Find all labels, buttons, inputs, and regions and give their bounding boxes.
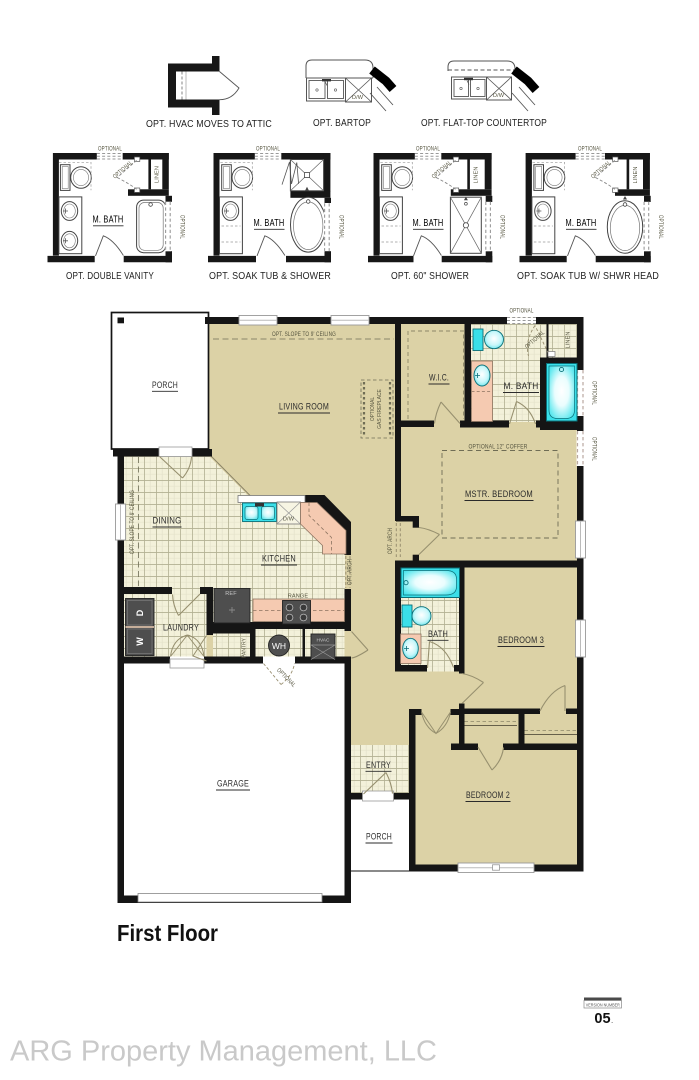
svg-text:OPT. SLOPE TO 9' CEILING: OPT. SLOPE TO 9' CEILING xyxy=(272,331,336,338)
svg-text:M. BATH: M. BATH xyxy=(566,217,597,229)
svg-text:ENTRY: ENTRY xyxy=(366,760,391,771)
svg-text:M. BATH: M. BATH xyxy=(254,217,285,229)
svg-text:BATH: BATH xyxy=(428,629,448,640)
svg-text:OPTIONAL 12" COFFER: OPTIONAL 12" COFFER xyxy=(469,444,528,451)
svg-text:ARG Property Management, LLC: ARG Property Management, LLC xyxy=(10,1036,437,1068)
svg-text:05: 05 xyxy=(594,1011,610,1027)
svg-text:OPT. 60" SHOWER: OPT. 60" SHOWER xyxy=(391,270,469,282)
svg-text:OPT. FLAT-TOP COUNTERTOP: OPT. FLAT-TOP COUNTERTOP xyxy=(421,117,547,129)
svg-text:LIVING ROOM: LIVING ROOM xyxy=(279,402,329,413)
svg-text:GARAGE: GARAGE xyxy=(217,779,249,790)
svg-text:OPTIONAL: OPTIONAL xyxy=(591,381,598,405)
svg-text:VERSION NUMBER: VERSION NUMBER xyxy=(586,1002,621,1007)
svg-text:W.I.C.: W.I.C. xyxy=(429,373,449,384)
svg-text:OPTIONAL: OPTIONAL xyxy=(431,159,454,180)
svg-text:OPT. SOAK TUB & SHOWER: OPT. SOAK TUB & SHOWER xyxy=(209,270,331,282)
svg-text:RANGE: RANGE xyxy=(288,594,309,600)
svg-text:LINEN: LINEN xyxy=(633,167,639,184)
svg-text:M. BATH: M. BATH xyxy=(93,214,124,226)
svg-text:LINEN: LINEN xyxy=(566,332,572,349)
svg-text:OPTIONAL: OPTIONAL xyxy=(112,159,135,180)
svg-text:LINEN: LINEN xyxy=(474,167,480,184)
svg-text:OPTIONAL: OPTIONAL xyxy=(657,215,664,239)
svg-text:OPTIONAL: OPTIONAL xyxy=(98,146,122,153)
svg-text:OPTIONAL: OPTIONAL xyxy=(591,437,598,461)
svg-text:OPT. HVAC MOVES TO ATTIC: OPT. HVAC MOVES TO ATTIC xyxy=(146,118,272,130)
svg-text:D/W: D/W xyxy=(352,95,364,101)
svg-text:PORCH: PORCH xyxy=(366,832,392,843)
svg-text:D/W: D/W xyxy=(493,93,505,99)
svg-text:D/W: D/W xyxy=(283,517,295,523)
svg-text:PANTRY: PANTRY xyxy=(242,638,248,658)
svg-text:KITCHEN: KITCHEN xyxy=(262,554,296,565)
svg-text:OPTIONAL: OPTIONAL xyxy=(416,146,440,153)
svg-text:M. BATH: M. BATH xyxy=(504,381,539,392)
svg-text:REF: REF xyxy=(225,591,237,597)
svg-text:OPTIONAL: OPTIONAL xyxy=(590,159,613,180)
svg-text:LAUNDRY: LAUNDRY xyxy=(163,623,199,634)
svg-text:MSTR. BEDROOM: MSTR. BEDROOM xyxy=(465,489,533,500)
svg-text:PORCH: PORCH xyxy=(152,380,178,391)
svg-text:GAS FIREPLACE: GAS FIREPLACE xyxy=(377,388,383,428)
svg-text:.: . xyxy=(611,1016,613,1025)
svg-text:WH: WH xyxy=(272,641,286,651)
svg-text:BEDROOM 3: BEDROOM 3 xyxy=(498,635,544,646)
svg-text:HVAC: HVAC xyxy=(317,638,331,644)
svg-text:OPT. DOUBLE VANITY: OPT. DOUBLE VANITY xyxy=(66,270,154,282)
svg-text:OPTIONAL: OPTIONAL xyxy=(510,308,534,315)
svg-text:BEDROOM 2: BEDROOM 2 xyxy=(466,790,510,801)
svg-text:OPT. ARCH: OPT. ARCH xyxy=(347,559,354,585)
svg-text:OPT. ARCH: OPT. ARCH xyxy=(387,528,394,554)
svg-text:LINEN: LINEN xyxy=(155,166,161,183)
svg-text:OPTIONAL: OPTIONAL xyxy=(578,146,602,153)
svg-text:OPTIONAL: OPTIONAL xyxy=(370,397,376,421)
svg-text:OPT. SLOPE TO 9' CEILING: OPT. SLOPE TO 9' CEILING xyxy=(129,490,136,554)
svg-text:M. BATH: M. BATH xyxy=(413,217,444,229)
svg-text:OPT. SOAK TUB W/ SHWR HEAD: OPT. SOAK TUB W/ SHWR HEAD xyxy=(517,270,659,282)
svg-text:DINING: DINING xyxy=(153,516,182,527)
svg-text:OPTIONAL: OPTIONAL xyxy=(179,215,186,239)
svg-text:OPTIONAL: OPTIONAL xyxy=(499,215,506,239)
svg-text:D: D xyxy=(135,609,145,616)
svg-text:OPT. BARTOP: OPT. BARTOP xyxy=(313,117,371,129)
svg-text:First Floor: First Floor xyxy=(117,920,218,946)
svg-text:W: W xyxy=(135,637,145,646)
svg-text:OPTIONAL: OPTIONAL xyxy=(338,215,345,239)
svg-text:OPTIONAL: OPTIONAL xyxy=(256,146,280,153)
